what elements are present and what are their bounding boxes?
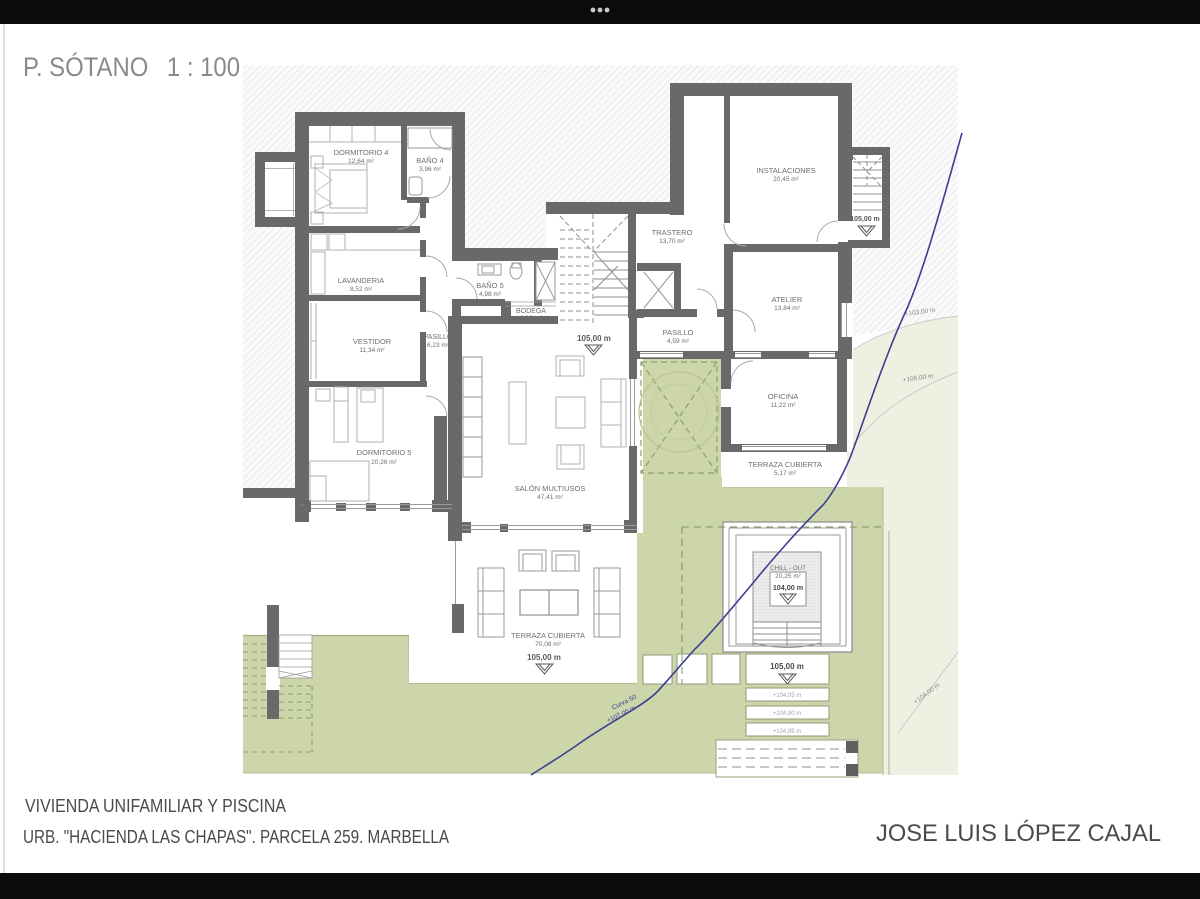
svg-text:OFICINA: OFICINA — [768, 392, 798, 401]
svg-text:URB. "HACIENDA LAS CHAPAS". PA: URB. "HACIENDA LAS CHAPAS". PARCELA 259.… — [23, 826, 450, 847]
svg-text:5,17 m²: 5,17 m² — [774, 470, 797, 477]
svg-text:11,22 m²: 11,22 m² — [770, 402, 796, 409]
svg-text:CHILL - OUT: CHILL - OUT — [770, 565, 806, 572]
svg-text:8,52 m²: 8,52 m² — [350, 286, 373, 293]
svg-text:TERRAZA CUBIERTA: TERRAZA CUBIERTA — [511, 631, 585, 640]
svg-text:DORMITORIO 4: DORMITORIO 4 — [334, 148, 389, 157]
svg-text:6,23 m²: 6,23 m² — [427, 342, 450, 349]
svg-text:JOSE LUIS LÓPEZ CAJAL: JOSE LUIS LÓPEZ CAJAL — [876, 820, 1161, 847]
svg-text:105,00 m: 105,00 m — [577, 334, 611, 343]
svg-text:20,45 m²: 20,45 m² — [773, 176, 799, 183]
svg-text:104,00 m: 104,00 m — [773, 583, 803, 592]
svg-text:PASILLO: PASILLO — [663, 328, 694, 337]
svg-text:0,20 m²: 0,20 m² — [520, 315, 543, 322]
svg-text:20,25 m²: 20,25 m² — [775, 573, 801, 580]
svg-text:13,70 m²: 13,70 m² — [659, 238, 685, 245]
svg-text:105,00 m: 105,00 m — [770, 662, 804, 671]
svg-text:70,08 m²: 70,08 m² — [535, 641, 561, 648]
svg-text:DORMITORIO 5: DORMITORIO 5 — [357, 448, 412, 457]
svg-text:4,98 m²: 4,98 m² — [479, 291, 502, 298]
svg-text:VESTIDOR: VESTIDOR — [353, 337, 392, 346]
svg-text:+104,90 m: +104,90 m — [773, 711, 802, 717]
svg-text:4,59 m²: 4,59 m² — [667, 338, 690, 345]
svg-text:47,41 m²: 47,41 m² — [537, 494, 563, 501]
svg-text:20,26 m²: 20,26 m² — [371, 459, 397, 466]
svg-text:P. SÓTANO 1 : 100: P. SÓTANO 1 : 100 — [23, 51, 240, 82]
svg-text:TERRAZA CUBIERTA: TERRAZA CUBIERTA — [748, 460, 822, 469]
svg-text:VIVIENDA UNIFAMILIAR Y PISCINA: VIVIENDA UNIFAMILIAR Y PISCINA — [25, 795, 287, 816]
svg-text:LAVANDERIA: LAVANDERIA — [338, 276, 384, 285]
svg-text:13,84 m²: 13,84 m² — [774, 305, 800, 312]
svg-text:PASILLO: PASILLO — [424, 334, 453, 341]
svg-text:ATELIER: ATELIER — [772, 295, 803, 304]
svg-text:+104,95 m: +104,95 m — [773, 693, 802, 699]
svg-text:INSTALACIONES: INSTALACIONES — [756, 166, 815, 175]
svg-text:TRASTERO: TRASTERO — [652, 228, 693, 237]
svg-text:+104,85 m: +104,85 m — [773, 729, 802, 735]
svg-text:105,00 m: 105,00 m — [527, 653, 561, 662]
svg-text:3,96 m²: 3,96 m² — [419, 166, 442, 173]
svg-text:BAÑO 4: BAÑO 4 — [416, 156, 444, 165]
svg-text:12,64 m²: 12,64 m² — [348, 158, 374, 165]
svg-text:BAÑO 5: BAÑO 5 — [476, 281, 504, 290]
svg-text:BODEGA: BODEGA — [516, 308, 546, 315]
svg-text:11,34 m²: 11,34 m² — [359, 347, 385, 354]
svg-text:SALÓN MULTIUSOS: SALÓN MULTIUSOS — [515, 484, 586, 493]
svg-text:105,00 m: 105,00 m — [850, 216, 880, 223]
